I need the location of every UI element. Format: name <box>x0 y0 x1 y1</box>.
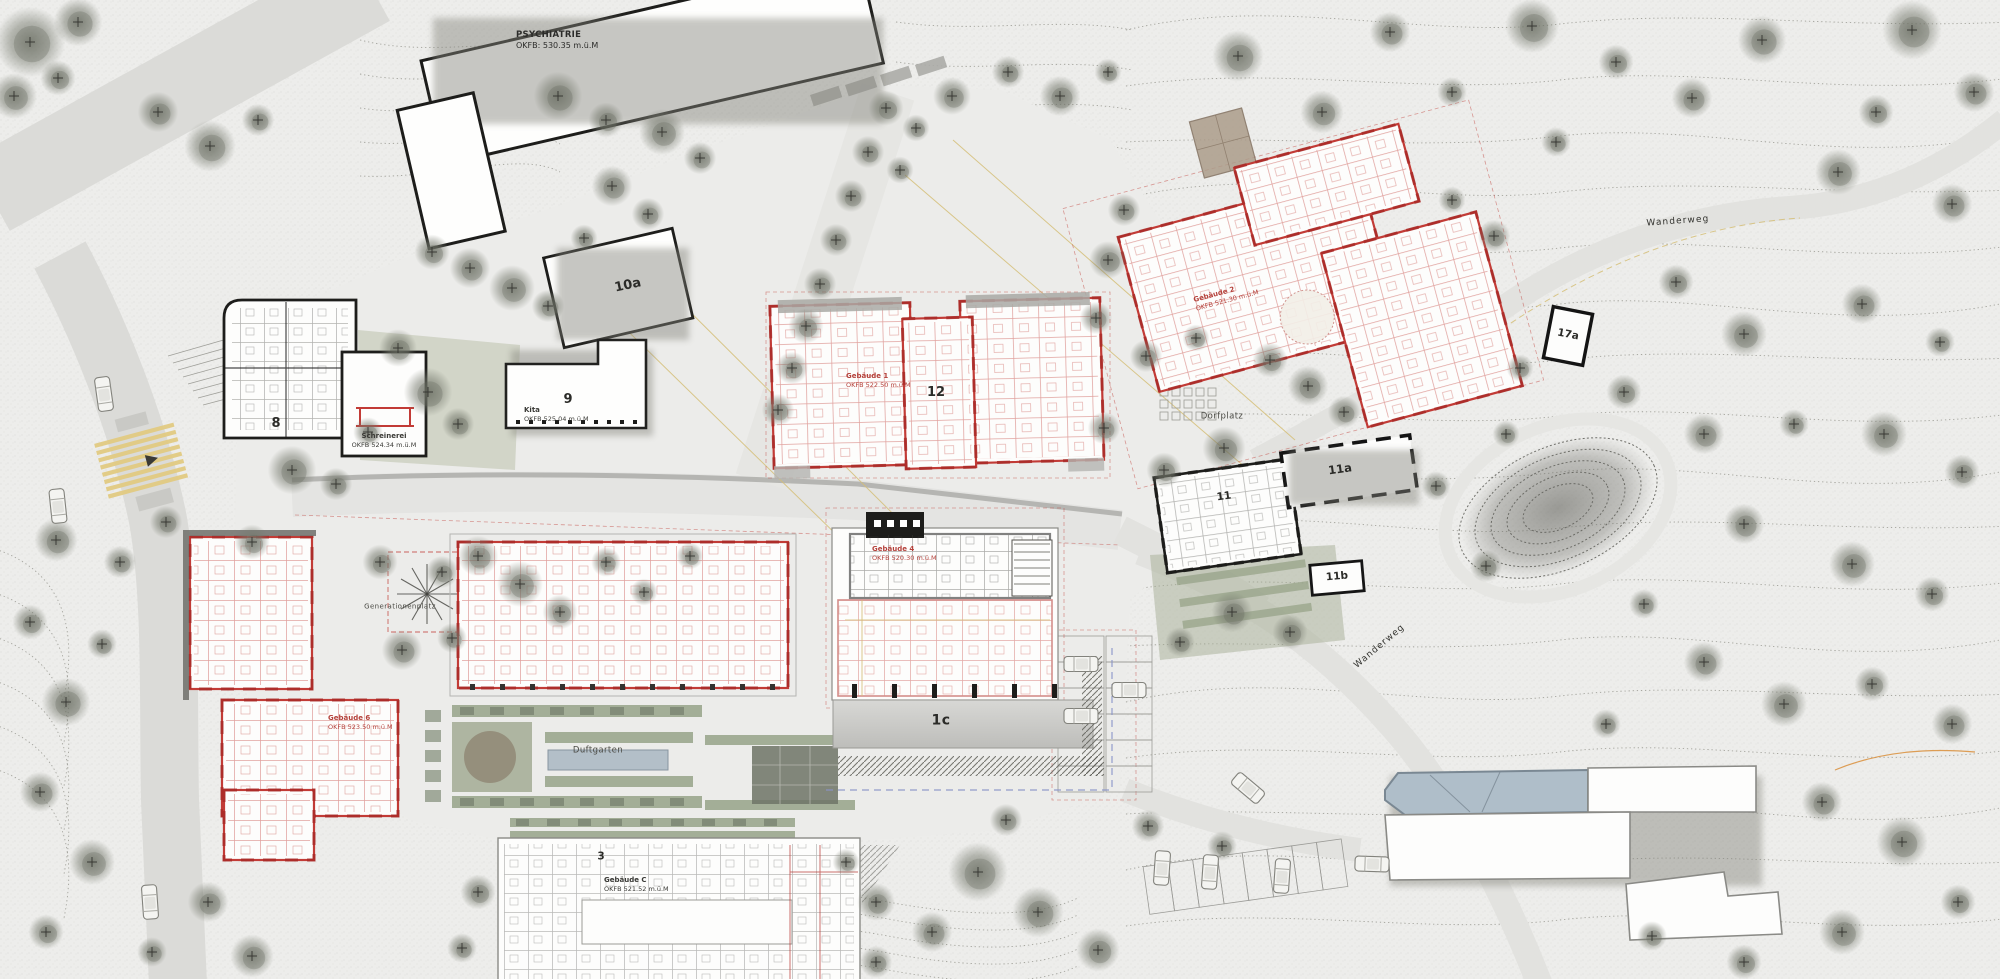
car <box>1112 683 1146 698</box>
label-building-1c: 1c <box>931 712 950 730</box>
label-building-11: 11 <box>1216 489 1232 504</box>
label-psychiatrie: PSYCHIATRIE OKFB: 530.35 m.ü.M <box>516 30 598 51</box>
car <box>1355 856 1390 872</box>
label-gebaeude-c: Gebäude C OKFB 521.52 m.ü.M <box>604 876 669 893</box>
label-dorfplatz: Dorfplatz <box>1201 412 1244 423</box>
label-schreinerei: Schreinerei OKFB 524.34 m.ü.M <box>352 432 417 449</box>
label-building-11b: 11b <box>1325 569 1348 584</box>
car <box>1273 859 1290 894</box>
label-kita: Kita OKFB 525.04 m.ü.M <box>524 406 589 423</box>
label-gebaeude-1: Gebäude 1 OKFB 522.50 m.ü.M <box>846 372 911 389</box>
site-plan-graphics <box>0 0 2000 979</box>
psychiatrie-title: PSYCHIATRIE <box>516 30 598 41</box>
car <box>1064 657 1098 672</box>
car <box>1201 855 1218 890</box>
label-building-8: 8 <box>271 416 280 432</box>
label-duftgarten: Duftgarten <box>573 746 623 757</box>
car <box>49 488 67 523</box>
car <box>1153 851 1170 886</box>
building-1c <box>833 700 1093 748</box>
site-plan-canvas: PSYCHIATRIE OKFB: 530.35 m.ü.M 10a 9 Kit… <box>0 0 2000 979</box>
psychiatrie-elevation: OKFB: 530.35 m.ü.M <box>516 41 598 51</box>
car <box>1064 709 1098 724</box>
label-gebaeude-6: Gebäude 6 OKFB 523.50 m.ü.M <box>328 714 393 731</box>
label-gebaeude-4: Gebäude 4 OKFB 520.30 m.ü.M <box>872 545 937 562</box>
label-generationenplatz: Generationenplatz <box>364 603 436 612</box>
car <box>141 885 158 920</box>
label-building-3: 3 <box>597 850 604 863</box>
label-building-12: 12 <box>927 385 945 401</box>
building-long-roof <box>1385 770 1588 815</box>
